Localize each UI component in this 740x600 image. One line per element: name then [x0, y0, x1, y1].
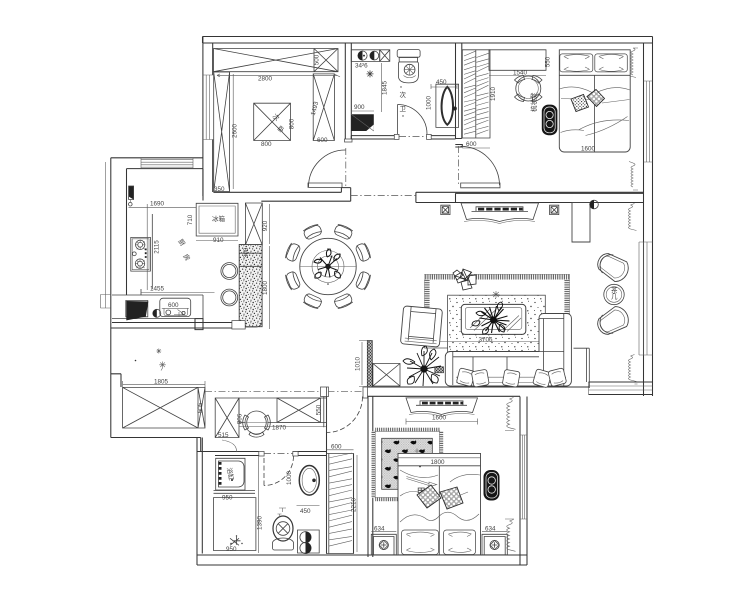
svg-text:2600: 2600	[232, 124, 239, 139]
svg-text:500: 500	[314, 54, 321, 65]
svg-text:450: 450	[300, 508, 311, 515]
svg-text:1805: 1805	[154, 379, 169, 386]
svg-text:1000: 1000	[286, 471, 293, 486]
svg-text:1600: 1600	[432, 415, 447, 422]
svg-text:1845: 1845	[382, 81, 389, 96]
svg-text:1600: 1600	[581, 146, 596, 153]
svg-text:2210: 2210	[351, 498, 358, 513]
svg-text:634: 634	[374, 526, 385, 533]
svg-text:次: 次	[400, 90, 407, 99]
svg-text:600: 600	[331, 444, 342, 451]
svg-text:1870: 1870	[272, 425, 287, 432]
svg-text:冰箱: 冰箱	[212, 214, 226, 223]
svg-text:800: 800	[289, 118, 296, 129]
svg-text:1010: 1010	[355, 357, 362, 372]
svg-text:卫: 卫	[400, 105, 407, 113]
svg-text:920: 920	[262, 220, 269, 231]
svg-text:3706: 3706	[479, 337, 494, 344]
svg-text:1690: 1690	[150, 201, 165, 208]
svg-text:34²6: 34²6	[355, 63, 368, 70]
svg-text:几: 几	[611, 293, 618, 301]
svg-text:505: 505	[197, 402, 204, 413]
svg-text:450: 450	[436, 79, 447, 86]
svg-text:550: 550	[545, 56, 552, 67]
svg-text:710: 710	[187, 214, 194, 225]
svg-text:600: 600	[168, 302, 179, 309]
svg-text:550: 550	[315, 404, 322, 415]
svg-text:600: 600	[317, 137, 328, 144]
svg-text:2800: 2800	[258, 76, 273, 83]
svg-text:900: 900	[354, 104, 365, 111]
svg-text:1800: 1800	[431, 459, 446, 466]
svg-text:634: 634	[485, 526, 496, 533]
svg-text:806: 806	[236, 413, 243, 424]
svg-text:1390: 1390	[257, 516, 264, 531]
svg-text:2115: 2115	[154, 240, 161, 254]
svg-text:1910: 1910	[490, 87, 497, 102]
svg-text:350: 350	[214, 186, 225, 193]
svg-text:1000: 1000	[426, 96, 433, 111]
svg-text:300: 300	[243, 247, 250, 258]
svg-text:515: 515	[218, 432, 229, 439]
svg-text:950: 950	[226, 546, 237, 553]
svg-text:梳妆凳: 梳妆凳	[529, 92, 538, 112]
svg-text:1455: 1455	[150, 286, 165, 293]
svg-text:800: 800	[261, 141, 272, 148]
svg-text:1540: 1540	[513, 70, 528, 77]
svg-text:1800: 1800	[262, 281, 269, 296]
